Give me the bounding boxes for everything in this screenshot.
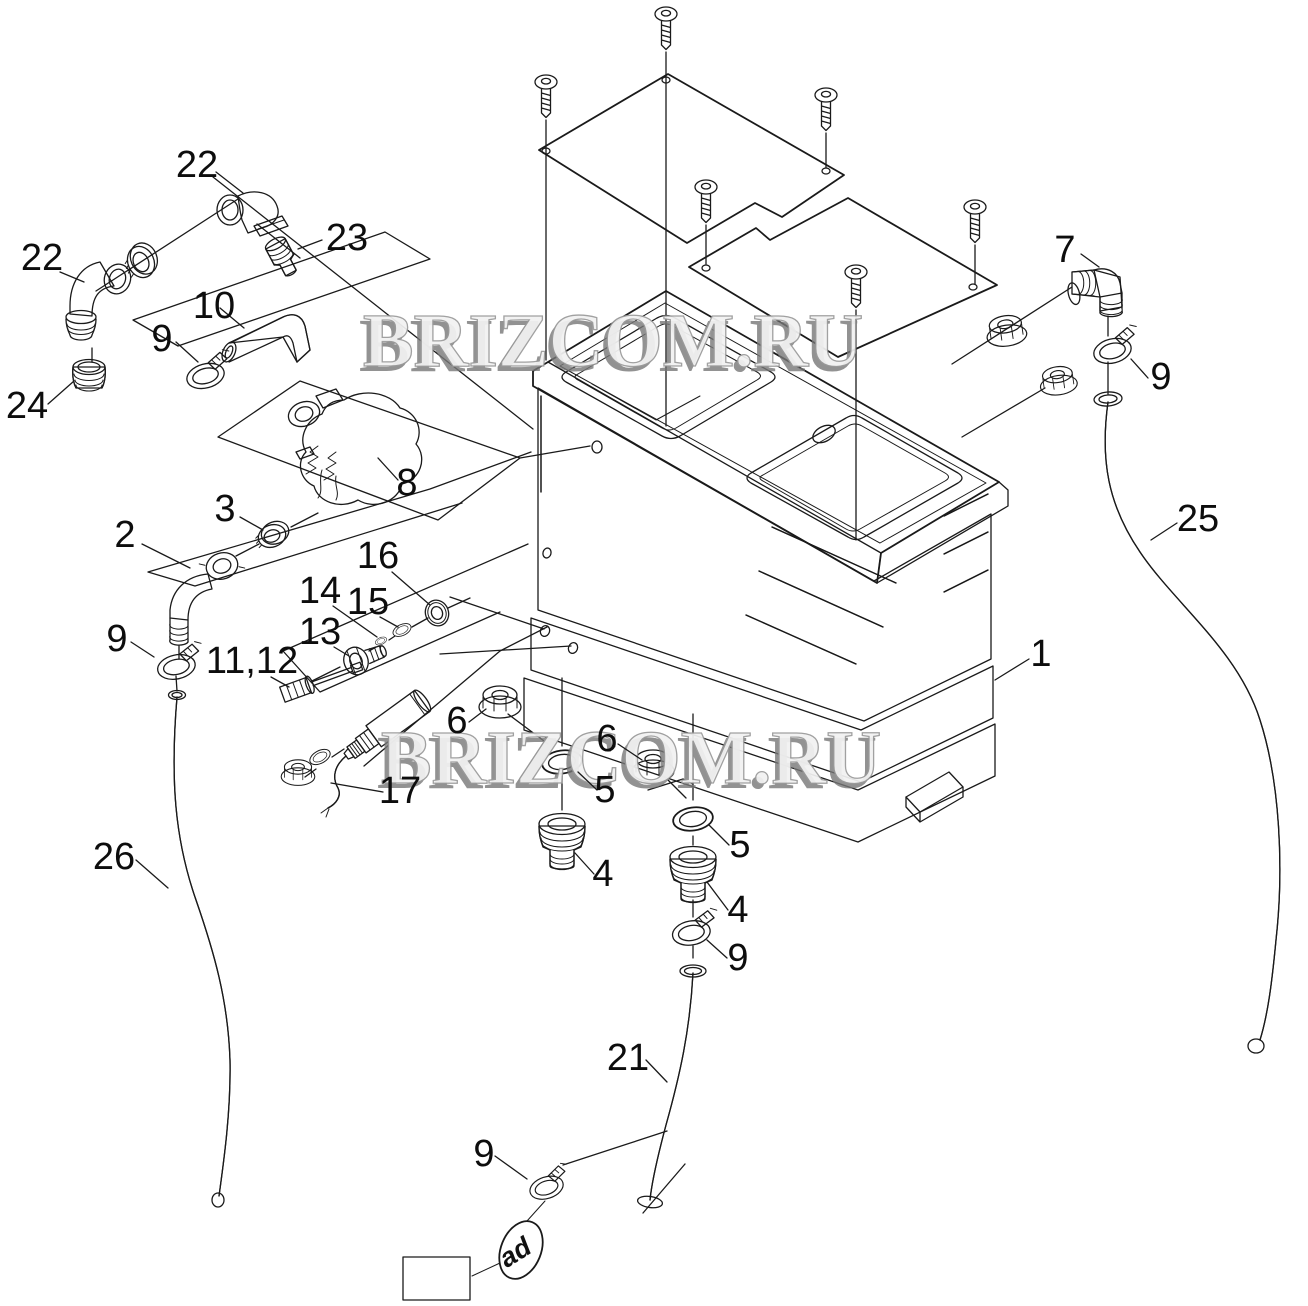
hose-clamp-9-e	[1089, 324, 1144, 368]
callout-25: 25	[1177, 498, 1219, 540]
hose-clamp-9-b	[153, 640, 207, 682]
callout-24: 24	[6, 385, 48, 427]
hose-clamp-9-d	[524, 1162, 574, 1204]
flange-ring-2	[198, 547, 246, 585]
section-badge: 3.2	[403, 1257, 470, 1300]
elbow-fitting-22-left	[66, 261, 134, 340]
callout-15: 15	[347, 581, 389, 623]
svg-text:BRIZCOM.RU: BRIZCOM.RU	[363, 299, 863, 383]
hose-25	[1094, 391, 1280, 1053]
callout-11-12: 11,12	[206, 640, 298, 682]
callout-9-b: 9	[106, 618, 127, 660]
callout-10: 10	[193, 285, 235, 327]
hex-plug-right-a	[984, 313, 1028, 349]
tank-opening-right	[747, 416, 962, 540]
callout-2: 2	[114, 514, 135, 556]
cover-plate-top	[539, 74, 844, 243]
footer-links: ad 3.2	[403, 1201, 551, 1300]
elbow-fitting-22-top	[217, 192, 288, 236]
cover-screws	[535, 7, 986, 308]
callout-7: 7	[1054, 229, 1075, 271]
callout-21: 21	[607, 1037, 649, 1079]
callout-17: 17	[379, 770, 421, 812]
callout-26: 26	[93, 836, 135, 878]
callout-1: 1	[1030, 633, 1051, 675]
callout-22-top: 22	[176, 144, 218, 186]
hexnut-6-left	[479, 686, 521, 718]
callout-6-right: 6	[596, 718, 617, 760]
callout-4-left: 4	[592, 853, 613, 895]
tank-tab	[906, 772, 963, 812]
callout-9-e: 9	[1150, 356, 1171, 398]
exploded-parts-diagram: BRIZCOM.RU BRIZCOM.RU BRIZCOM.RU BRIZCOM…	[0, 0, 1308, 1306]
callout-9-c: 9	[727, 937, 748, 979]
callout-8: 8	[396, 462, 417, 504]
plug-24	[73, 360, 106, 392]
seal-ring-5-right	[672, 805, 715, 833]
parts-diagram-page: BRIZCOM.RU BRIZCOM.RU BRIZCOM.RU BRIZCOM…	[0, 0, 1308, 1306]
drain-fitting-4-left	[539, 814, 585, 870]
hex-plug-right-b	[1038, 364, 1079, 397]
callout-3: 3	[214, 488, 235, 530]
callout-22-left: 22	[21, 237, 63, 279]
callout-23: 23	[326, 217, 368, 259]
hose-21	[637, 965, 706, 1209]
elbow-fitting-7	[1066, 269, 1122, 317]
callout-5-left: 5	[594, 769, 615, 811]
hose-clamp-9-c	[669, 907, 722, 948]
hose-26	[169, 691, 231, 1208]
callout-14: 14	[299, 570, 341, 612]
section-badge-label: 3.2	[410, 1257, 461, 1298]
callout-9-a: 9	[151, 318, 172, 360]
drain-fitting-4-right	[670, 847, 716, 903]
callout-16: 16	[357, 535, 399, 577]
watermark-upper: BRIZCOM.RU BRIZCOM.RU	[359, 299, 863, 388]
variant-oval: ad	[491, 1215, 551, 1286]
callout-4-right: 4	[727, 889, 748, 931]
fitting-13	[340, 637, 390, 678]
callout-13: 13	[299, 611, 341, 653]
callout-6-left: 6	[446, 700, 467, 742]
callout-9-d: 9	[473, 1133, 494, 1175]
callout-5-right: 5	[729, 824, 750, 866]
